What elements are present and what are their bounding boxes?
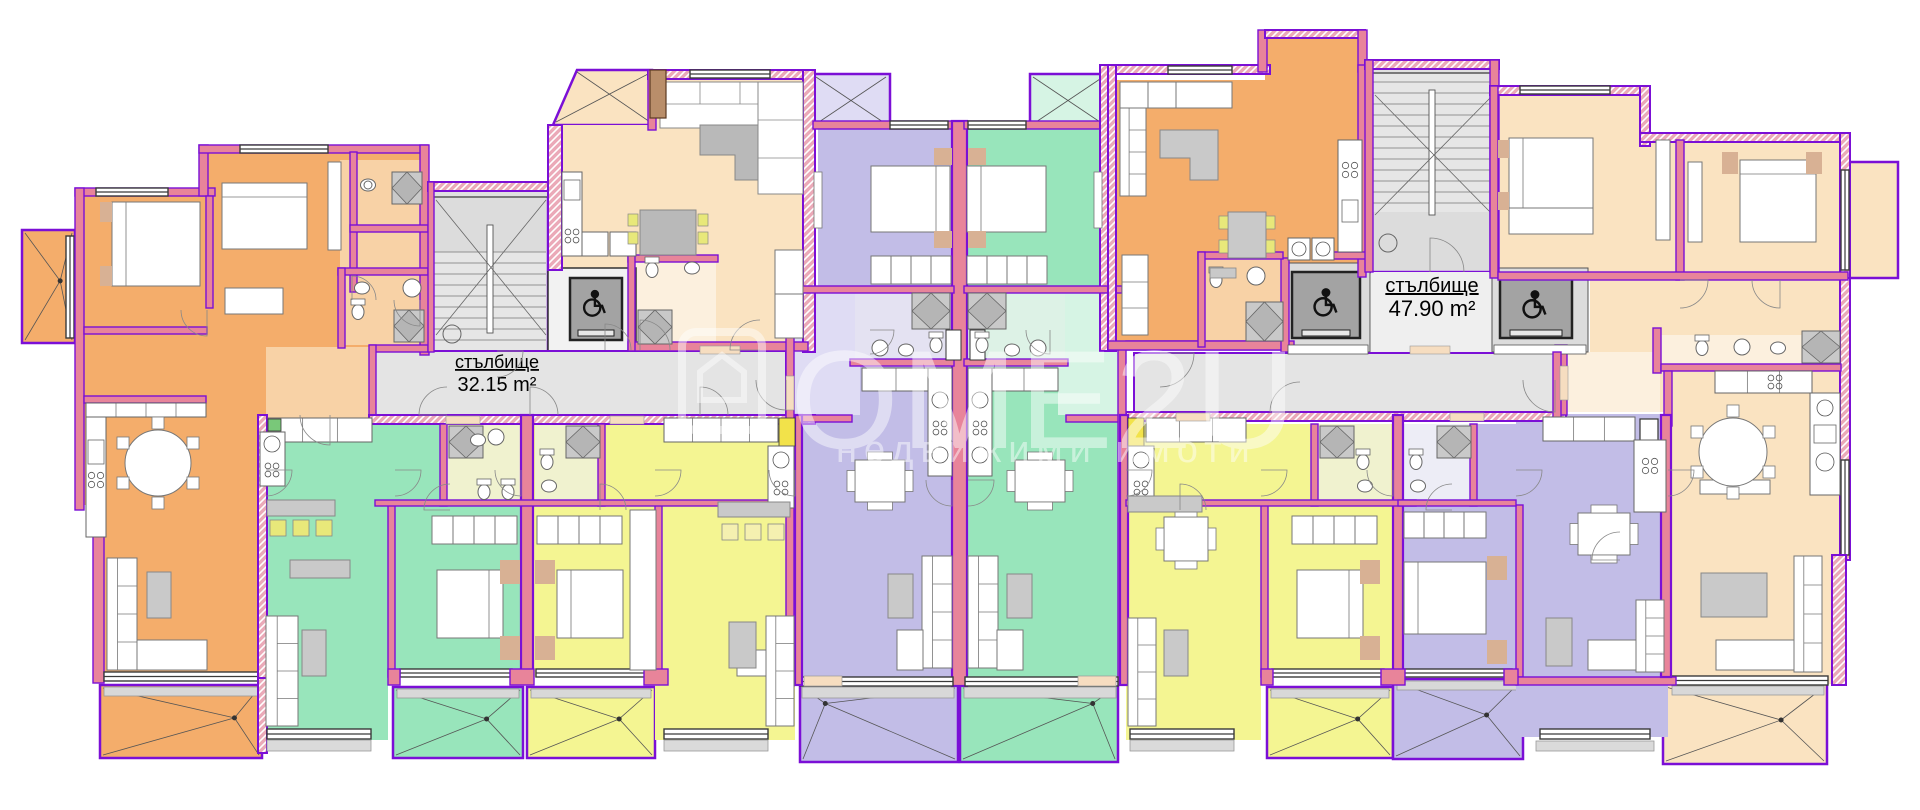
svg-text:стълбище: стълбище [1385,275,1478,297]
svg-text:стълбище: стълбище [455,352,539,372]
svg-text:недвижими имоти: недвижими имоти [836,429,1257,471]
svg-text:47.90 m²: 47.90 m² [1389,296,1476,321]
